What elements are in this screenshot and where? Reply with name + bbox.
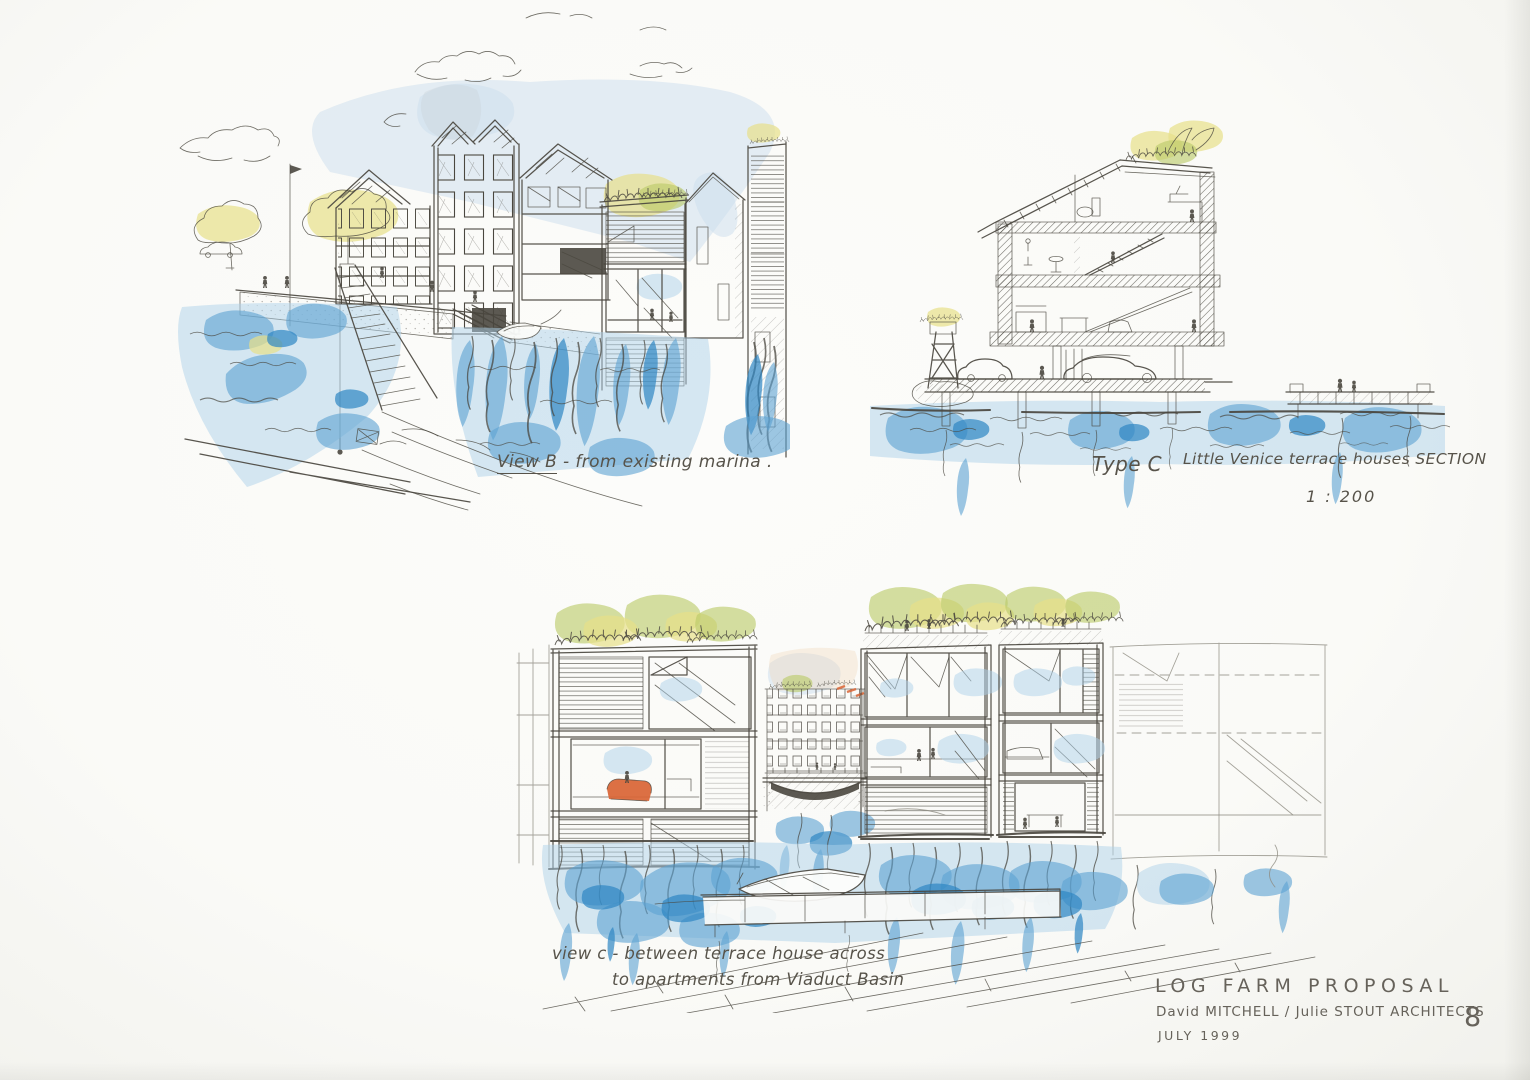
- caption-view-c-line1: view c - between terrace house across: [552, 944, 885, 963]
- caption-view-c-line2: to apartments from Viaduct Basin: [612, 970, 904, 989]
- sheet-number: 8: [1464, 1002, 1481, 1033]
- caption-view-b-text: - from existing marina .: [563, 452, 773, 472]
- title-block-date: JULY 1999: [1158, 1028, 1242, 1043]
- caption-view-b-label: View B: [497, 452, 557, 474]
- title-block-project: LOG FARM PROPOSAL: [1155, 975, 1454, 997]
- title-block-architects: David MITCHELL / Julie STOUT ARCHITECTS: [1156, 1004, 1485, 1020]
- caption-type-c-scale: 1 : 200: [1306, 487, 1376, 506]
- caption-type-c-label: Type C: [1092, 452, 1162, 476]
- view-b-sketch: [170, 2, 790, 517]
- caption-type-c-title: Little Venice terrace houses SECTION: [1183, 450, 1487, 468]
- caption-view-b: View B - from existing marina .: [497, 452, 773, 472]
- scanned-sketch-sheet: { "colors":{ "paper":"#fafaf7","ink":"#4…: [0, 0, 1530, 1080]
